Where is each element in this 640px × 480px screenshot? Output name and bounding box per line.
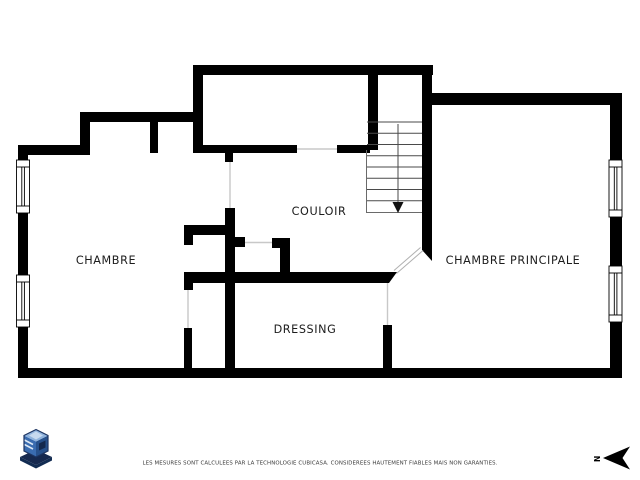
- wall-stair-right-bevel: [422, 250, 432, 261]
- wall-couloir-top-a: [193, 145, 297, 153]
- room-label-chambre: CHAMBRE: [76, 254, 136, 267]
- wall-closet-west: [184, 328, 192, 378]
- north-arrow-label: N: [593, 456, 602, 462]
- wall-protrusion-left: [193, 65, 203, 153]
- window-right-1: [609, 160, 622, 217]
- room-label-dressing: DRESSING: [274, 323, 337, 336]
- wall-bump-top: [80, 112, 203, 122]
- wall-entry-vertical: [280, 238, 290, 283]
- wall-chambre-door-jamb: [225, 153, 233, 162]
- cubicasa-logo: [20, 430, 52, 469]
- windows: [17, 160, 623, 327]
- wall-couloir-south-cap: [184, 272, 193, 290]
- wall-chambre-east: [225, 208, 235, 378]
- wall-stair-left: [368, 65, 378, 150]
- wall-niche-fin-cap: [184, 225, 193, 245]
- wall-stair-right: [422, 65, 432, 250]
- wall-couloir-top-b: [337, 145, 370, 153]
- wall-top-main: [193, 65, 433, 75]
- floor-plan-page: CHAMBRE COULOIR DRESSING CHAMBRE PRINCIP…: [0, 0, 640, 480]
- footer-disclaimer: LES MESURES SONT CALCULEES PAR LA TECHNO…: [142, 461, 497, 467]
- wall-couloir-south-bevel: [389, 272, 397, 283]
- diagonal-door: [394, 248, 423, 274]
- north-arrow-glyph: [603, 447, 630, 470]
- room-label-chambre-principale: CHAMBRE PRINCIPALE: [446, 254, 581, 267]
- wall-dressing-right: [383, 325, 392, 378]
- wall-outer-bottom: [18, 368, 622, 378]
- window-left-1: [17, 160, 30, 213]
- floor-plan-canvas: CHAMBRE COULOIR DRESSING CHAMBRE PRINCIP…: [0, 0, 640, 480]
- room-label-couloir: COULOIR: [292, 205, 347, 218]
- wall-cp-top: [422, 93, 622, 105]
- stair-direction-arrow: [393, 124, 404, 213]
- window-right-2: [609, 266, 622, 322]
- north-arrow: N: [593, 447, 630, 470]
- wall-bump-divider: [150, 122, 158, 153]
- wall-outer-right: [610, 93, 622, 378]
- wall-entry-stub: [235, 237, 245, 247]
- wall-outer-top-left: [18, 145, 90, 155]
- window-left-2: [17, 275, 30, 327]
